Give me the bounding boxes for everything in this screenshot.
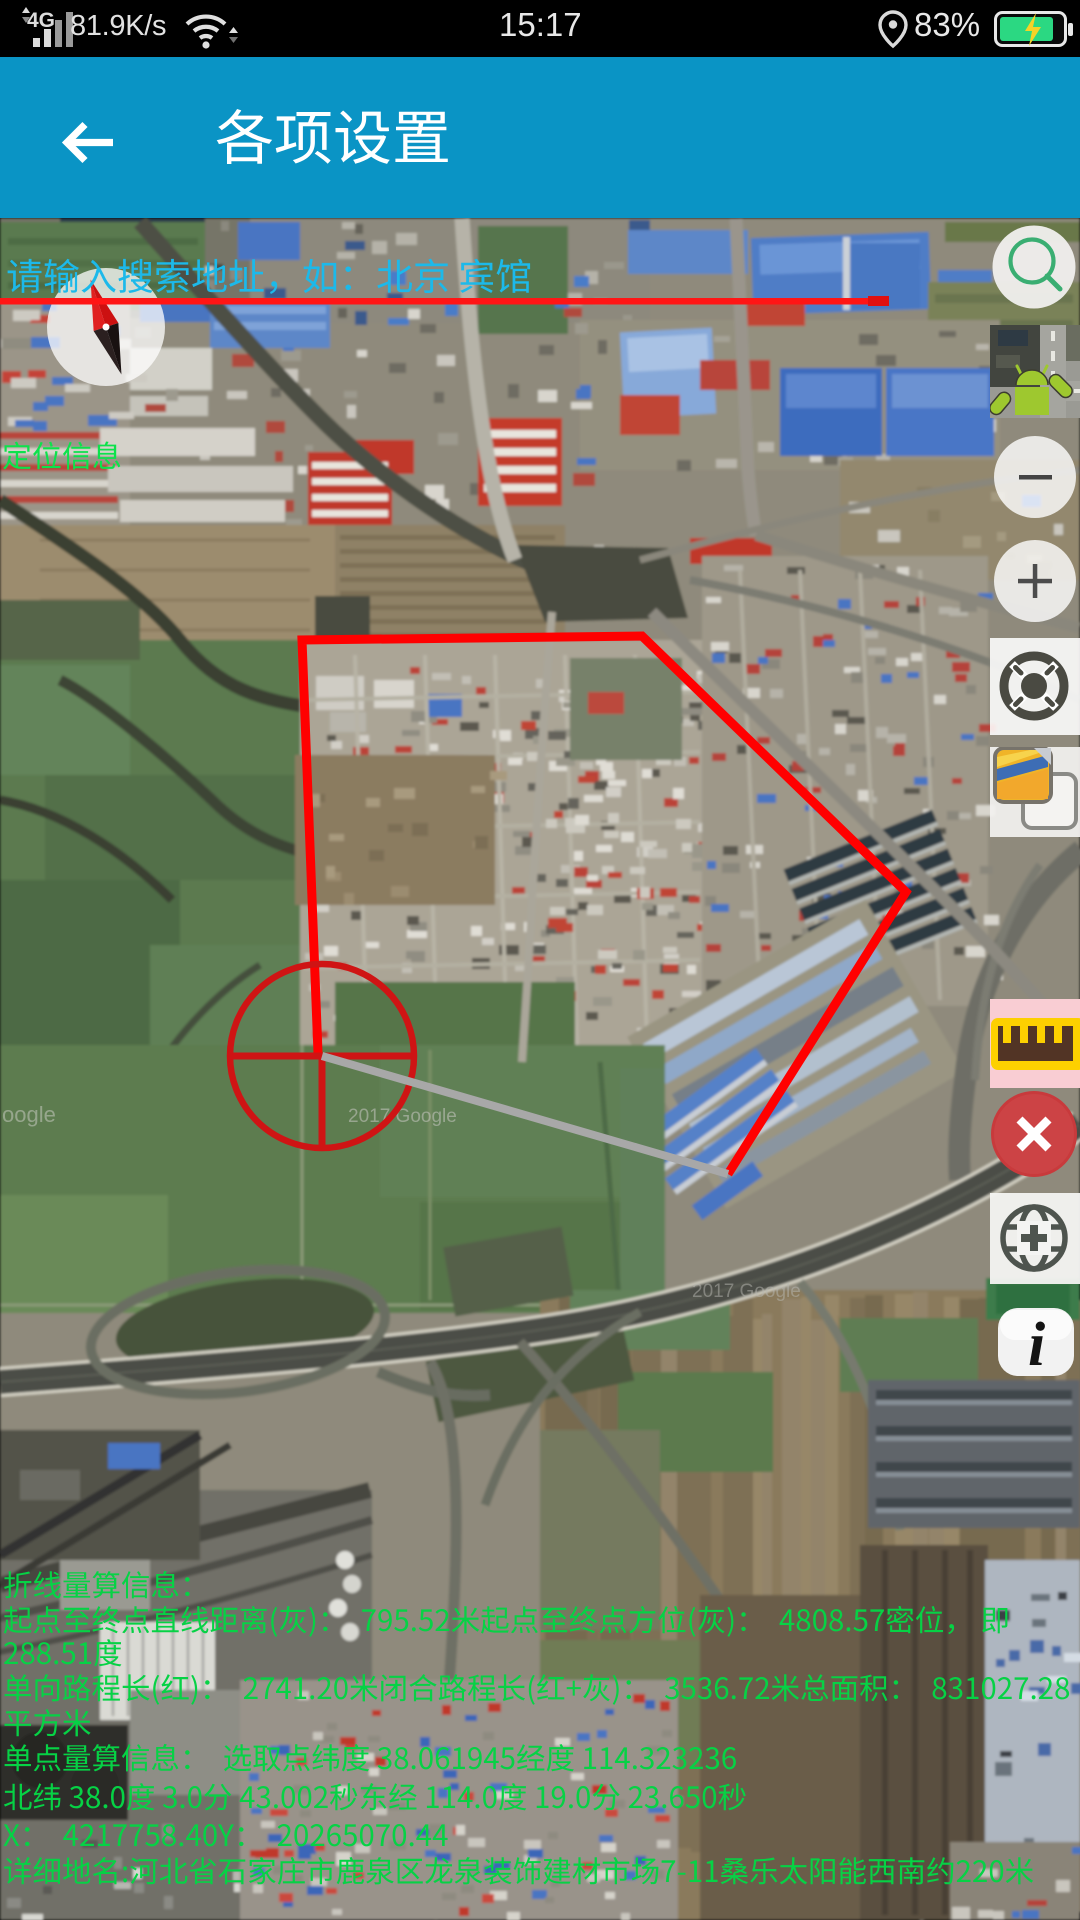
svg-text:i: i bbox=[1028, 1311, 1045, 1376]
svg-text:2017 Google: 2017 Google bbox=[692, 1281, 801, 1302]
svg-text:2017 Google: 2017 Google bbox=[348, 1106, 457, 1127]
svg-text:oogle: oogle bbox=[2, 1102, 56, 1127]
svg-text:4G: 4G bbox=[27, 9, 55, 32]
